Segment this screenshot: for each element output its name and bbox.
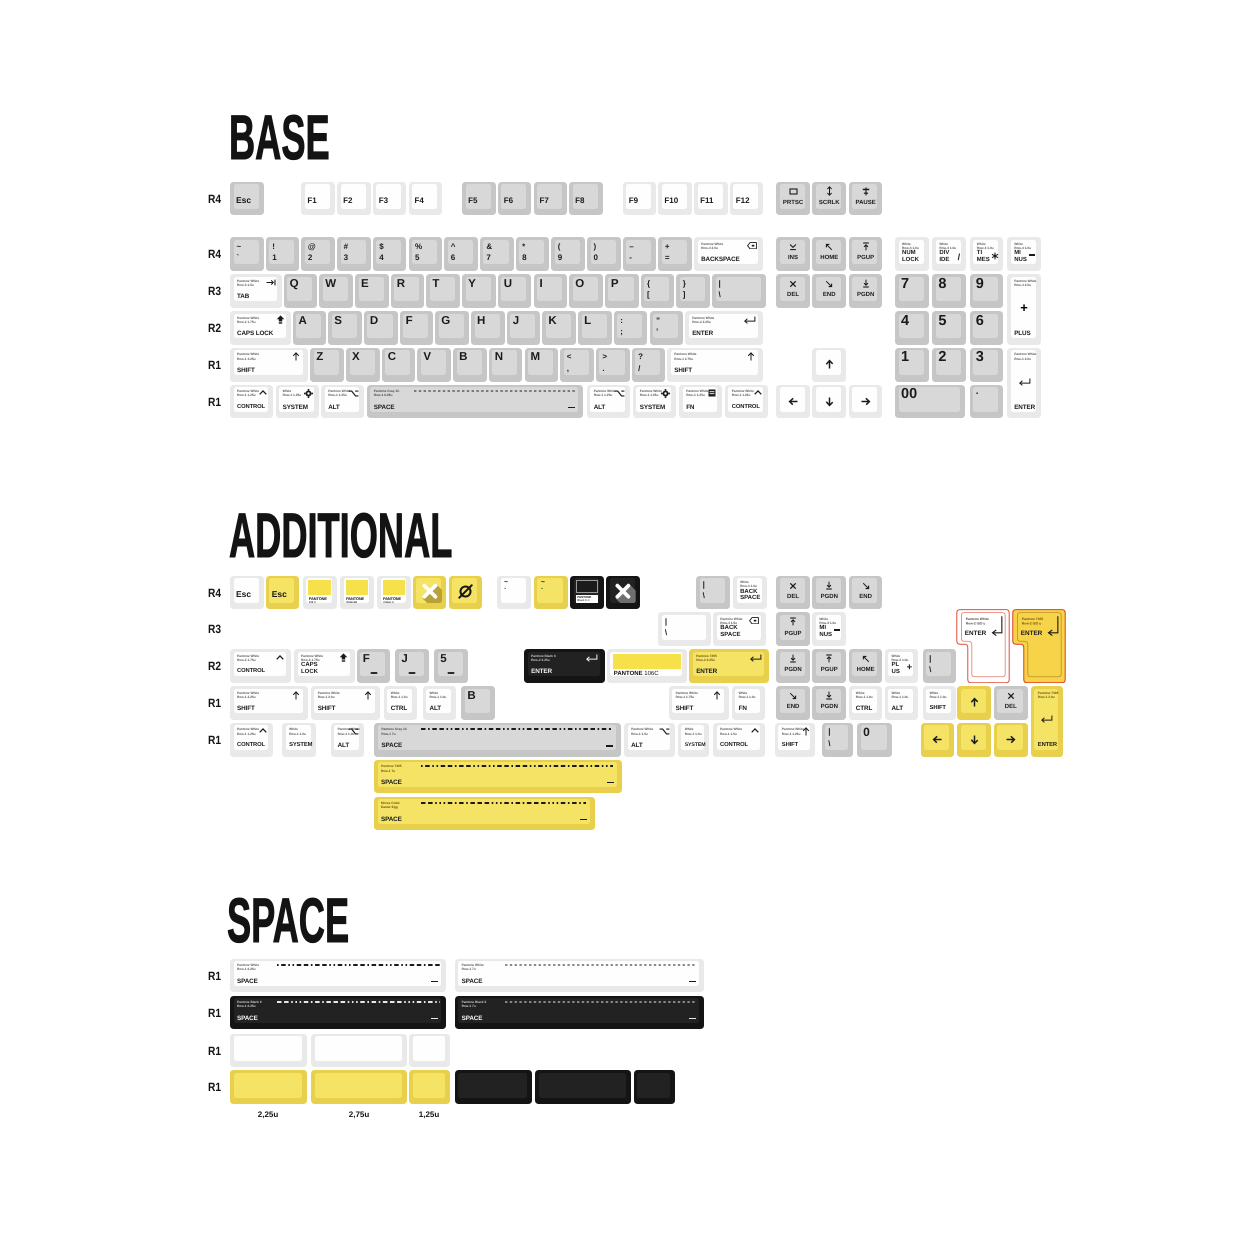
svg-text:Row-2 ISO u: Row-2 ISO u — [1022, 621, 1042, 625]
svg-text:Pantone 7405: Pantone 7405 — [1022, 617, 1044, 621]
svg-text:ENTER: ENTER — [965, 630, 987, 637]
svg-text:ENTER: ENTER — [1021, 630, 1043, 637]
svg-text:Pantone White: Pantone White — [966, 617, 989, 621]
svg-text:Row-2 ISO u: Row-2 ISO u — [966, 621, 986, 625]
